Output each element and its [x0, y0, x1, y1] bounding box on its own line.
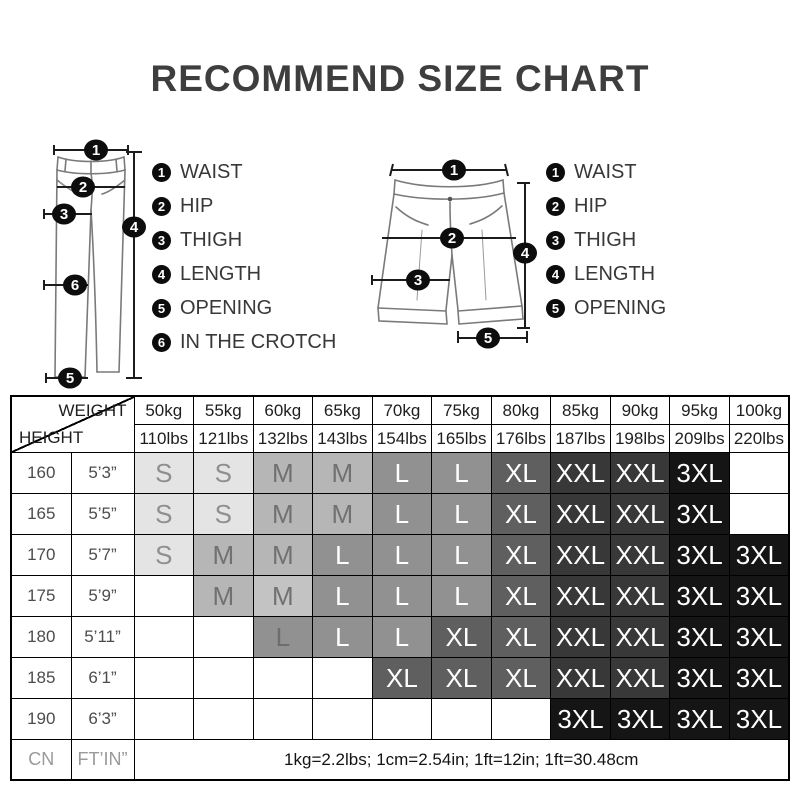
pants-marker-thigh: 3 — [52, 204, 76, 225]
unit-cn-cell: CN — [11, 740, 71, 781]
weight-kg-cell-7: 85kg — [551, 396, 611, 425]
size-cell — [372, 699, 432, 740]
number-badge: 3 — [152, 231, 171, 250]
size-cell: XXL — [610, 658, 670, 699]
size-cell — [432, 699, 492, 740]
table-row-170: 1705’7”SMMLLLXLXXLXXL3XL3XL — [11, 535, 789, 576]
size-cell: L — [432, 453, 492, 494]
size-cell — [253, 699, 313, 740]
legend-label: LENGTH — [574, 263, 655, 286]
height-cm-cell: 190 — [11, 699, 71, 740]
height-ft-cell: 6’3” — [71, 699, 134, 740]
height-cm-cell: 185 — [11, 658, 71, 699]
weight-lbs-cell-6: 176lbs — [491, 425, 551, 453]
size-cell: S — [194, 494, 254, 535]
size-cell — [313, 699, 373, 740]
weight-lbs-cell-3: 143lbs — [313, 425, 373, 453]
table-row-185: 1856’1”XLXLXLXXLXXL3XL3XL — [11, 658, 789, 699]
weight-lbs-cell-4: 154lbs — [372, 425, 432, 453]
size-cell — [253, 658, 313, 699]
size-cell: 3XL — [670, 658, 730, 699]
height-ft-cell: 5’5” — [71, 494, 134, 535]
size-cell: L — [313, 617, 373, 658]
size-cell: L — [372, 453, 432, 494]
pants-diagram: 1 2 3 4 6 5 — [30, 130, 150, 395]
size-cell: XXL — [610, 576, 670, 617]
number-badge: 3 — [546, 231, 565, 250]
legend-label: LENGTH — [180, 263, 261, 286]
legend-label: HIP — [574, 195, 607, 218]
size-cell: 3XL — [729, 535, 789, 576]
shorts-legend-item-opening: 5OPENING — [546, 291, 666, 325]
size-cell: XXL — [551, 658, 611, 699]
page-title: RECOMMEND SIZE CHART — [0, 58, 800, 100]
marker-number: 6 — [71, 277, 79, 294]
pants-legend-item-in-the-crotch: 6IN THE CROTCH — [152, 325, 336, 359]
number-badge: 4 — [152, 265, 171, 284]
size-cell: S — [134, 535, 194, 576]
size-cell: XXL — [551, 617, 611, 658]
size-cell — [729, 494, 789, 535]
height-axis-label: HEIGHT — [19, 428, 83, 448]
size-cell: XXL — [610, 617, 670, 658]
legend-label: OPENING — [574, 297, 666, 320]
size-cell — [134, 658, 194, 699]
shorts-legend-item-length: 4LENGTH — [546, 257, 666, 291]
number-badge: 5 — [152, 299, 171, 318]
number-badge: 4 — [546, 265, 565, 284]
size-cell: L — [372, 576, 432, 617]
weight-lbs-cell-5: 165lbs — [432, 425, 492, 453]
weight-kg-cell-3: 65kg — [313, 396, 373, 425]
size-cell: L — [253, 617, 313, 658]
size-cell: L — [432, 494, 492, 535]
size-cell: XXL — [610, 494, 670, 535]
size-cell: XL — [432, 617, 492, 658]
weight-kg-row: WEIGHT HEIGHT 50kg55kg60kg65kg70kg75kg80… — [11, 396, 789, 425]
table-row-175: 1755’9”MMLLLXLXXLXXL3XL3XL — [11, 576, 789, 617]
size-cell: 3XL — [551, 699, 611, 740]
marker-number: 5 — [66, 370, 74, 387]
pants-legend-item-opening: 5OPENING — [152, 291, 336, 325]
pants-legend-item-waist: 1WAIST — [152, 155, 336, 189]
height-cm-cell: 160 — [11, 453, 71, 494]
weight-lbs-cell-2: 132lbs — [253, 425, 313, 453]
size-cell: XL — [491, 576, 551, 617]
marker-number: 3 — [414, 272, 422, 289]
size-cell: L — [313, 535, 373, 576]
size-cell: XL — [432, 658, 492, 699]
pants-legend-item-thigh: 3THIGH — [152, 223, 336, 257]
size-cell: XL — [491, 658, 551, 699]
height-ft-cell: 5’11” — [71, 617, 134, 658]
size-cell — [134, 699, 194, 740]
size-cell: XL — [491, 494, 551, 535]
number-badge: 1 — [152, 163, 171, 182]
size-cell: 3XL — [610, 699, 670, 740]
corner-cell: WEIGHT HEIGHT — [11, 396, 134, 453]
marker-number: 5 — [484, 330, 492, 347]
weight-kg-cell-10: 100kg — [729, 396, 789, 425]
size-cell: 3XL — [670, 699, 730, 740]
weight-kg-cell-1: 55kg — [194, 396, 254, 425]
size-cell: XXL — [551, 494, 611, 535]
size-cell — [194, 658, 254, 699]
size-cell: 3XL — [670, 494, 730, 535]
unit-ftin-cell: FT’IN” — [71, 740, 134, 781]
shorts-legend: 1WAIST2HIP3THIGH4LENGTH5OPENING — [546, 155, 666, 325]
shorts-diagram: 1 2 3 4 5 — [370, 150, 530, 380]
size-cell: M — [313, 453, 373, 494]
size-cell: XL — [491, 453, 551, 494]
shorts-marker-opening: 5 — [476, 328, 500, 349]
size-cell: XXL — [551, 576, 611, 617]
weight-kg-cell-6: 80kg — [491, 396, 551, 425]
marker-number: 4 — [521, 245, 530, 262]
marker-number: 2 — [79, 179, 87, 196]
size-cell: L — [432, 576, 492, 617]
size-cell — [134, 617, 194, 658]
number-badge: 2 — [152, 197, 171, 216]
weight-lbs-cell-9: 209lbs — [670, 425, 730, 453]
size-cell: XXL — [551, 453, 611, 494]
size-cell: M — [253, 535, 313, 576]
pants-marker-opening: 5 — [58, 368, 82, 389]
size-cell: 3XL — [670, 576, 730, 617]
size-cell — [194, 617, 254, 658]
pants-marker-hip: 2 — [71, 177, 95, 198]
marker-number: 1 — [92, 142, 100, 159]
number-badge: 6 — [152, 333, 171, 352]
number-badge: 2 — [546, 197, 565, 216]
table-row-165: 1655’5”SSMMLLXLXXLXXL3XL — [11, 494, 789, 535]
size-cell: 3XL — [729, 658, 789, 699]
height-ft-cell: 5’3” — [71, 453, 134, 494]
shorts-marker-thigh: 3 — [406, 270, 430, 291]
height-cm-cell: 165 — [11, 494, 71, 535]
size-cell: 3XL — [729, 617, 789, 658]
legend-label: THIGH — [574, 229, 636, 252]
size-cell: 3XL — [729, 576, 789, 617]
size-cell: XXL — [610, 453, 670, 494]
conversion-note: 1kg=2.2lbs; 1cm=2.54in; 1ft=12in; 1ft=30… — [134, 740, 789, 781]
pants-legend-item-length: 4LENGTH — [152, 257, 336, 291]
weight-kg-cell-9: 95kg — [670, 396, 730, 425]
size-table-body: 1605’3”SSMMLLXLXXLXXL3XL1655’5”SSMMLLXLX… — [11, 453, 789, 740]
size-cell — [134, 576, 194, 617]
legend-label: IN THE CROTCH — [180, 331, 336, 354]
weight-lbs-cell-1: 121lbs — [194, 425, 254, 453]
marker-number: 3 — [60, 206, 68, 223]
size-cell: 3XL — [670, 617, 730, 658]
size-cell: XXL — [551, 535, 611, 576]
height-ft-cell: 5’7” — [71, 535, 134, 576]
legend-label: WAIST — [180, 161, 243, 184]
weight-kg-cell-5: 75kg — [432, 396, 492, 425]
legend-label: THIGH — [180, 229, 242, 252]
legend-label: OPENING — [180, 297, 272, 320]
size-cell — [194, 699, 254, 740]
size-cell: 3XL — [670, 535, 730, 576]
size-cell: M — [253, 576, 313, 617]
size-cell — [491, 699, 551, 740]
height-cm-cell: 175 — [11, 576, 71, 617]
pants-marker-waist: 1 — [84, 140, 108, 161]
table-row-160: 1605’3”SSMMLLXLXXLXXL3XL — [11, 453, 789, 494]
pants-legend-item-hip: 2HIP — [152, 189, 336, 223]
shorts-legend-item-hip: 2HIP — [546, 189, 666, 223]
weight-lbs-cell-7: 187lbs — [551, 425, 611, 453]
size-cell: S — [134, 494, 194, 535]
shorts-marker-waist: 1 — [442, 160, 466, 181]
size-cell: XL — [491, 617, 551, 658]
legend-label: HIP — [180, 195, 213, 218]
shorts-measure-lines — [372, 164, 530, 343]
shorts-marker-hip: 2 — [440, 228, 464, 249]
table-row-190: 1906’3”3XL3XL3XL3XL — [11, 699, 789, 740]
size-cell: M — [253, 494, 313, 535]
size-cell: L — [372, 494, 432, 535]
shorts-outline — [378, 180, 523, 324]
size-cell: S — [194, 453, 254, 494]
size-chart-page: RECOMMEND SIZE CHART — [0, 0, 800, 800]
size-cell: XL — [372, 658, 432, 699]
weight-kg-cell-0: 50kg — [134, 396, 194, 425]
shorts-marker-length: 4 — [513, 243, 537, 264]
size-cell: M — [313, 494, 373, 535]
weight-axis-label: WEIGHT — [59, 401, 127, 421]
size-cell: M — [194, 576, 254, 617]
size-cell: L — [432, 535, 492, 576]
size-cell — [729, 453, 789, 494]
size-cell: L — [372, 535, 432, 576]
height-ft-cell: 6’1” — [71, 658, 134, 699]
size-cell: M — [194, 535, 254, 576]
size-cell — [313, 658, 373, 699]
size-cell: 3XL — [729, 699, 789, 740]
number-badge: 5 — [546, 299, 565, 318]
size-cell: S — [134, 453, 194, 494]
size-cell: 3XL — [670, 453, 730, 494]
height-cm-cell: 170 — [11, 535, 71, 576]
height-ft-cell: 5’9” — [71, 576, 134, 617]
height-cm-cell: 180 — [11, 617, 71, 658]
size-cell: XXL — [610, 535, 670, 576]
weight-kg-cell-8: 90kg — [610, 396, 670, 425]
weight-lbs-cell-0: 110lbs — [134, 425, 194, 453]
marker-number: 1 — [450, 162, 458, 179]
size-cell: M — [253, 453, 313, 494]
size-table: WEIGHT HEIGHT 50kg55kg60kg65kg70kg75kg80… — [10, 395, 790, 781]
number-badge: 1 — [546, 163, 565, 182]
weight-lbs-cell-8: 198lbs — [610, 425, 670, 453]
shorts-legend-item-waist: 1WAIST — [546, 155, 666, 189]
table-row-180: 1805’11”LLLXLXLXXLXXL3XL3XL — [11, 617, 789, 658]
marker-number: 4 — [130, 219, 139, 236]
size-cell: L — [372, 617, 432, 658]
shorts-legend-item-thigh: 3THIGH — [546, 223, 666, 257]
weight-kg-cell-4: 70kg — [372, 396, 432, 425]
pants-legend: 1WAIST2HIP3THIGH4LENGTH5OPENING6IN THE C… — [152, 155, 336, 359]
pants-marker-crotch: 6 — [63, 275, 87, 296]
marker-number: 2 — [448, 230, 456, 247]
units-row: CN FT’IN” 1kg=2.2lbs; 1cm=2.54in; 1ft=12… — [11, 740, 789, 781]
weight-kg-cell-2: 60kg — [253, 396, 313, 425]
size-cell: L — [313, 576, 373, 617]
pants-marker-length: 4 — [122, 217, 146, 238]
legend-label: WAIST — [574, 161, 637, 184]
size-cell: XL — [491, 535, 551, 576]
weight-lbs-cell-10: 220lbs — [729, 425, 789, 453]
